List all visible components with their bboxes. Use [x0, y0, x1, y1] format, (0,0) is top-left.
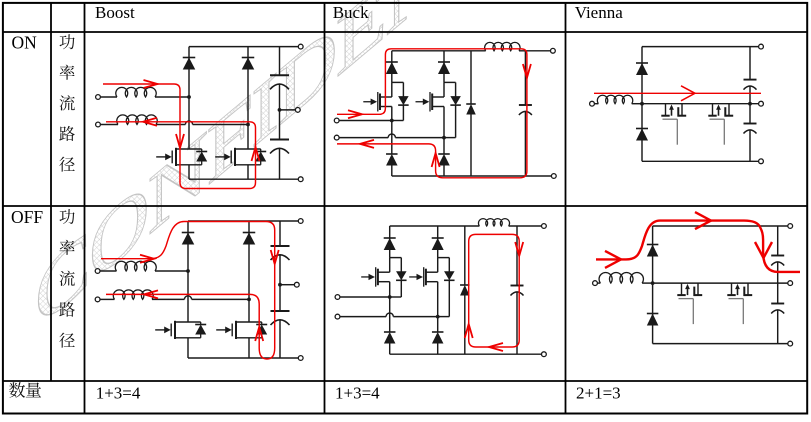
svg-text:1+3=4: 1+3=4 — [96, 383, 141, 402]
svg-text:1+3=4: 1+3=4 — [335, 383, 380, 402]
svg-text:Boost: Boost — [95, 3, 135, 22]
svg-text:Buck: Buck — [333, 3, 369, 22]
svg-text:2+1=3: 2+1=3 — [576, 383, 621, 402]
svg-text:ON: ON — [12, 32, 38, 52]
svg-text:OFF: OFF — [11, 207, 43, 227]
svg-text:Vienna: Vienna — [575, 3, 624, 22]
